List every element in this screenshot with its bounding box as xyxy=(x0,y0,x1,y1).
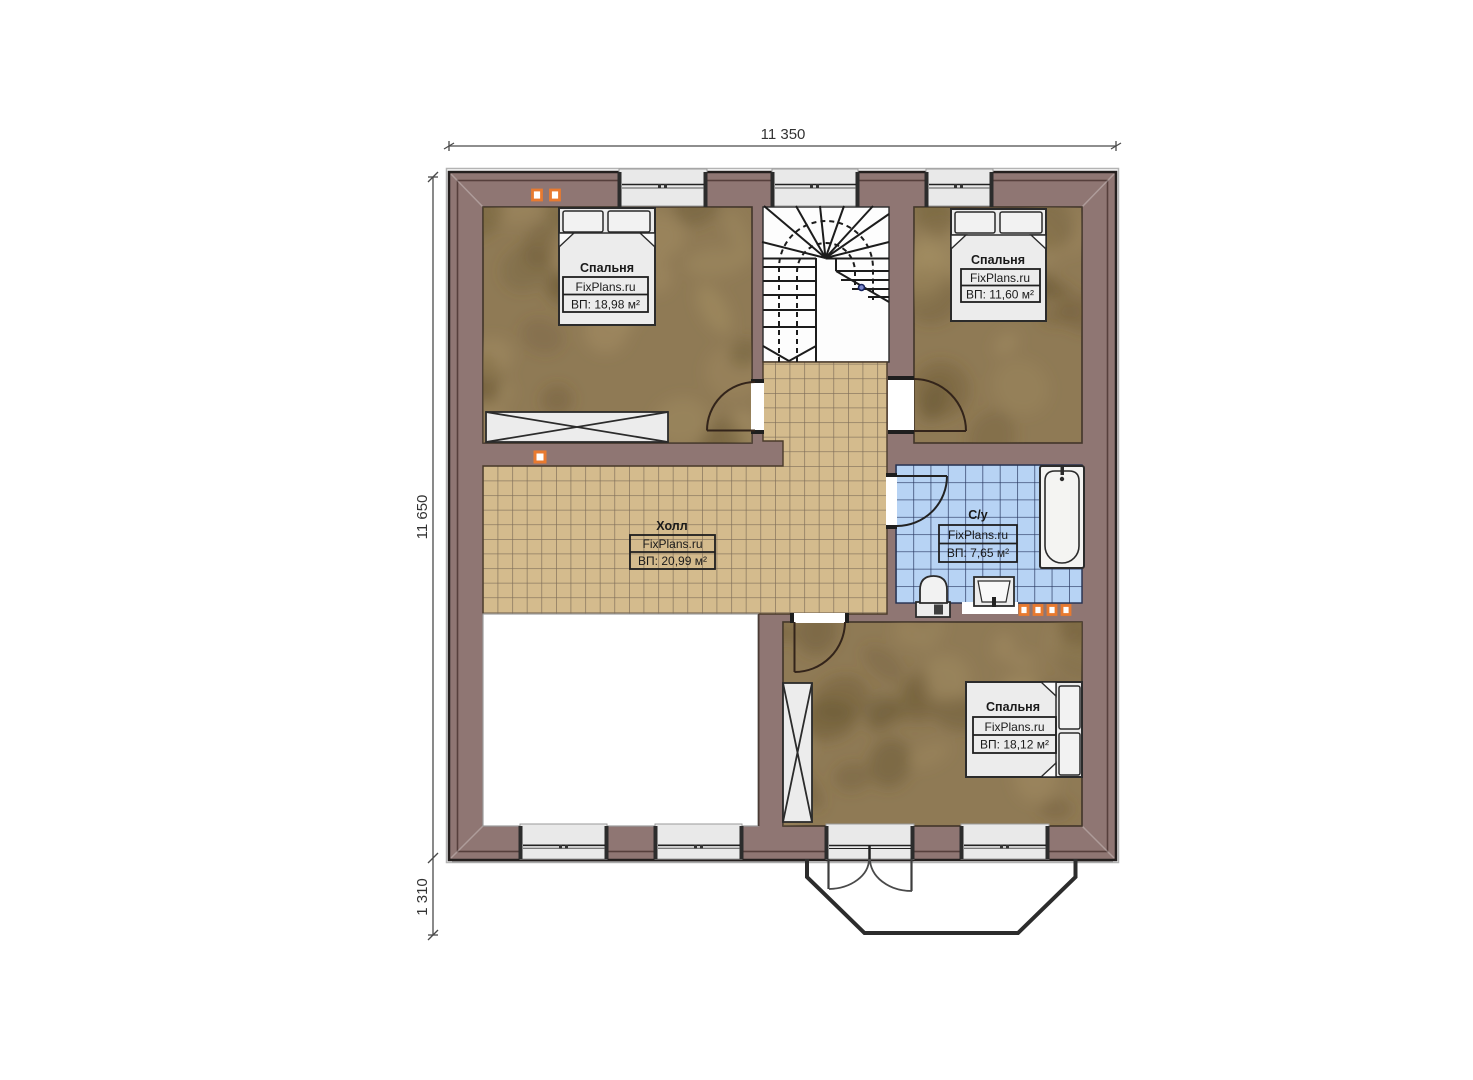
svg-text:ВП: 7,65 м²: ВП: 7,65 м² xyxy=(947,546,1009,560)
svg-text:С/у: С/у xyxy=(968,508,988,522)
svg-text:FixPlans.ru: FixPlans.ru xyxy=(948,528,1008,542)
svg-text:11 650: 11 650 xyxy=(414,495,431,540)
svg-text:ВП: 18,98 м²: ВП: 18,98 м² xyxy=(571,298,640,312)
svg-text:ВП: 11,60 м²: ВП: 11,60 м² xyxy=(966,288,1034,302)
svg-text:ВП: 18,12 м²: ВП: 18,12 м² xyxy=(980,738,1049,752)
svg-text:Спальня: Спальня xyxy=(971,253,1025,267)
svg-text:FixPlans.ru: FixPlans.ru xyxy=(970,271,1030,285)
svg-text:ВП: 20,99 м²: ВП: 20,99 м² xyxy=(638,554,707,568)
svg-text:Холл: Холл xyxy=(656,519,687,533)
svg-text:Спальня: Спальня xyxy=(986,700,1040,714)
svg-text:FixPlans.ru: FixPlans.ru xyxy=(642,537,702,551)
svg-text:FixPlans.ru: FixPlans.ru xyxy=(575,280,635,294)
svg-text:Спальня: Спальня xyxy=(580,261,634,275)
svg-text:11 350: 11 350 xyxy=(761,126,806,143)
svg-text:FixPlans.ru: FixPlans.ru xyxy=(984,720,1044,734)
svg-text:1 310: 1 310 xyxy=(414,878,431,916)
